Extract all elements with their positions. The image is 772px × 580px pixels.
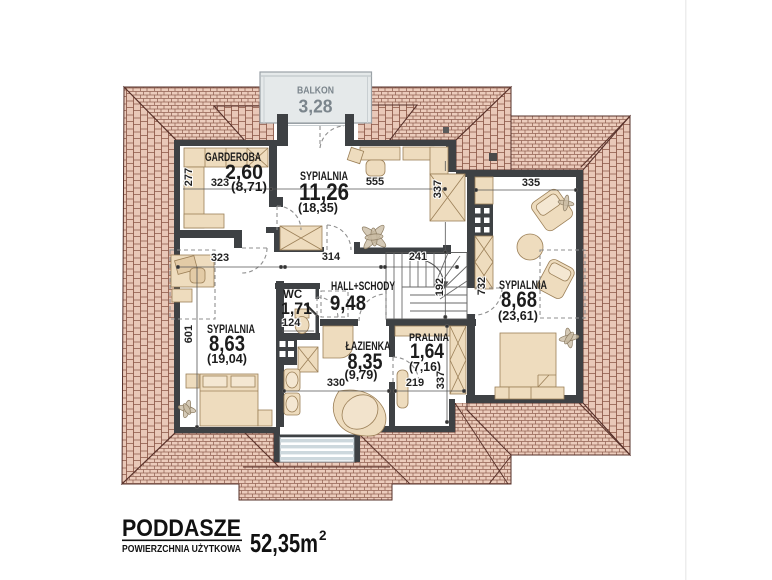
svg-text:335: 335 <box>522 177 540 189</box>
svg-text:(19,04): (19,04) <box>207 351 247 366</box>
svg-text:(23,61): (23,61) <box>498 308 538 323</box>
svg-text:330: 330 <box>327 377 345 389</box>
svg-text:601: 601 <box>183 325 195 343</box>
svg-text:555: 555 <box>366 176 384 188</box>
svg-text:1,71: 1,71 <box>281 299 312 318</box>
svg-text:HALL+SCHODY: HALL+SCHODY <box>331 279 395 293</box>
svg-text:323: 323 <box>211 252 229 264</box>
svg-text:241: 241 <box>409 251 427 263</box>
svg-text:PODDASZE: PODDASZE <box>122 515 241 542</box>
svg-text:337: 337 <box>435 371 447 389</box>
svg-text:732: 732 <box>476 277 488 295</box>
svg-text:323: 323 <box>211 177 229 189</box>
svg-text:192: 192 <box>434 278 446 296</box>
svg-text:(9,79): (9,79) <box>345 368 378 382</box>
svg-text:277: 277 <box>183 168 195 186</box>
svg-text:POWIERZCHNIA UŻYTKOWA: POWIERZCHNIA UŻYTKOWA <box>122 542 241 555</box>
svg-text:(18,35): (18,35) <box>298 200 338 215</box>
svg-text:2: 2 <box>319 528 327 543</box>
svg-text:219: 219 <box>406 377 424 389</box>
svg-text:9,48: 9,48 <box>330 292 366 315</box>
svg-text:124: 124 <box>282 317 301 329</box>
svg-text:314: 314 <box>322 251 341 263</box>
svg-text:337: 337 <box>432 180 444 198</box>
svg-text:3,28: 3,28 <box>299 96 333 117</box>
svg-text:(8,71): (8,71) <box>231 180 267 194</box>
svg-text:52,35m: 52,35m <box>250 528 318 558</box>
